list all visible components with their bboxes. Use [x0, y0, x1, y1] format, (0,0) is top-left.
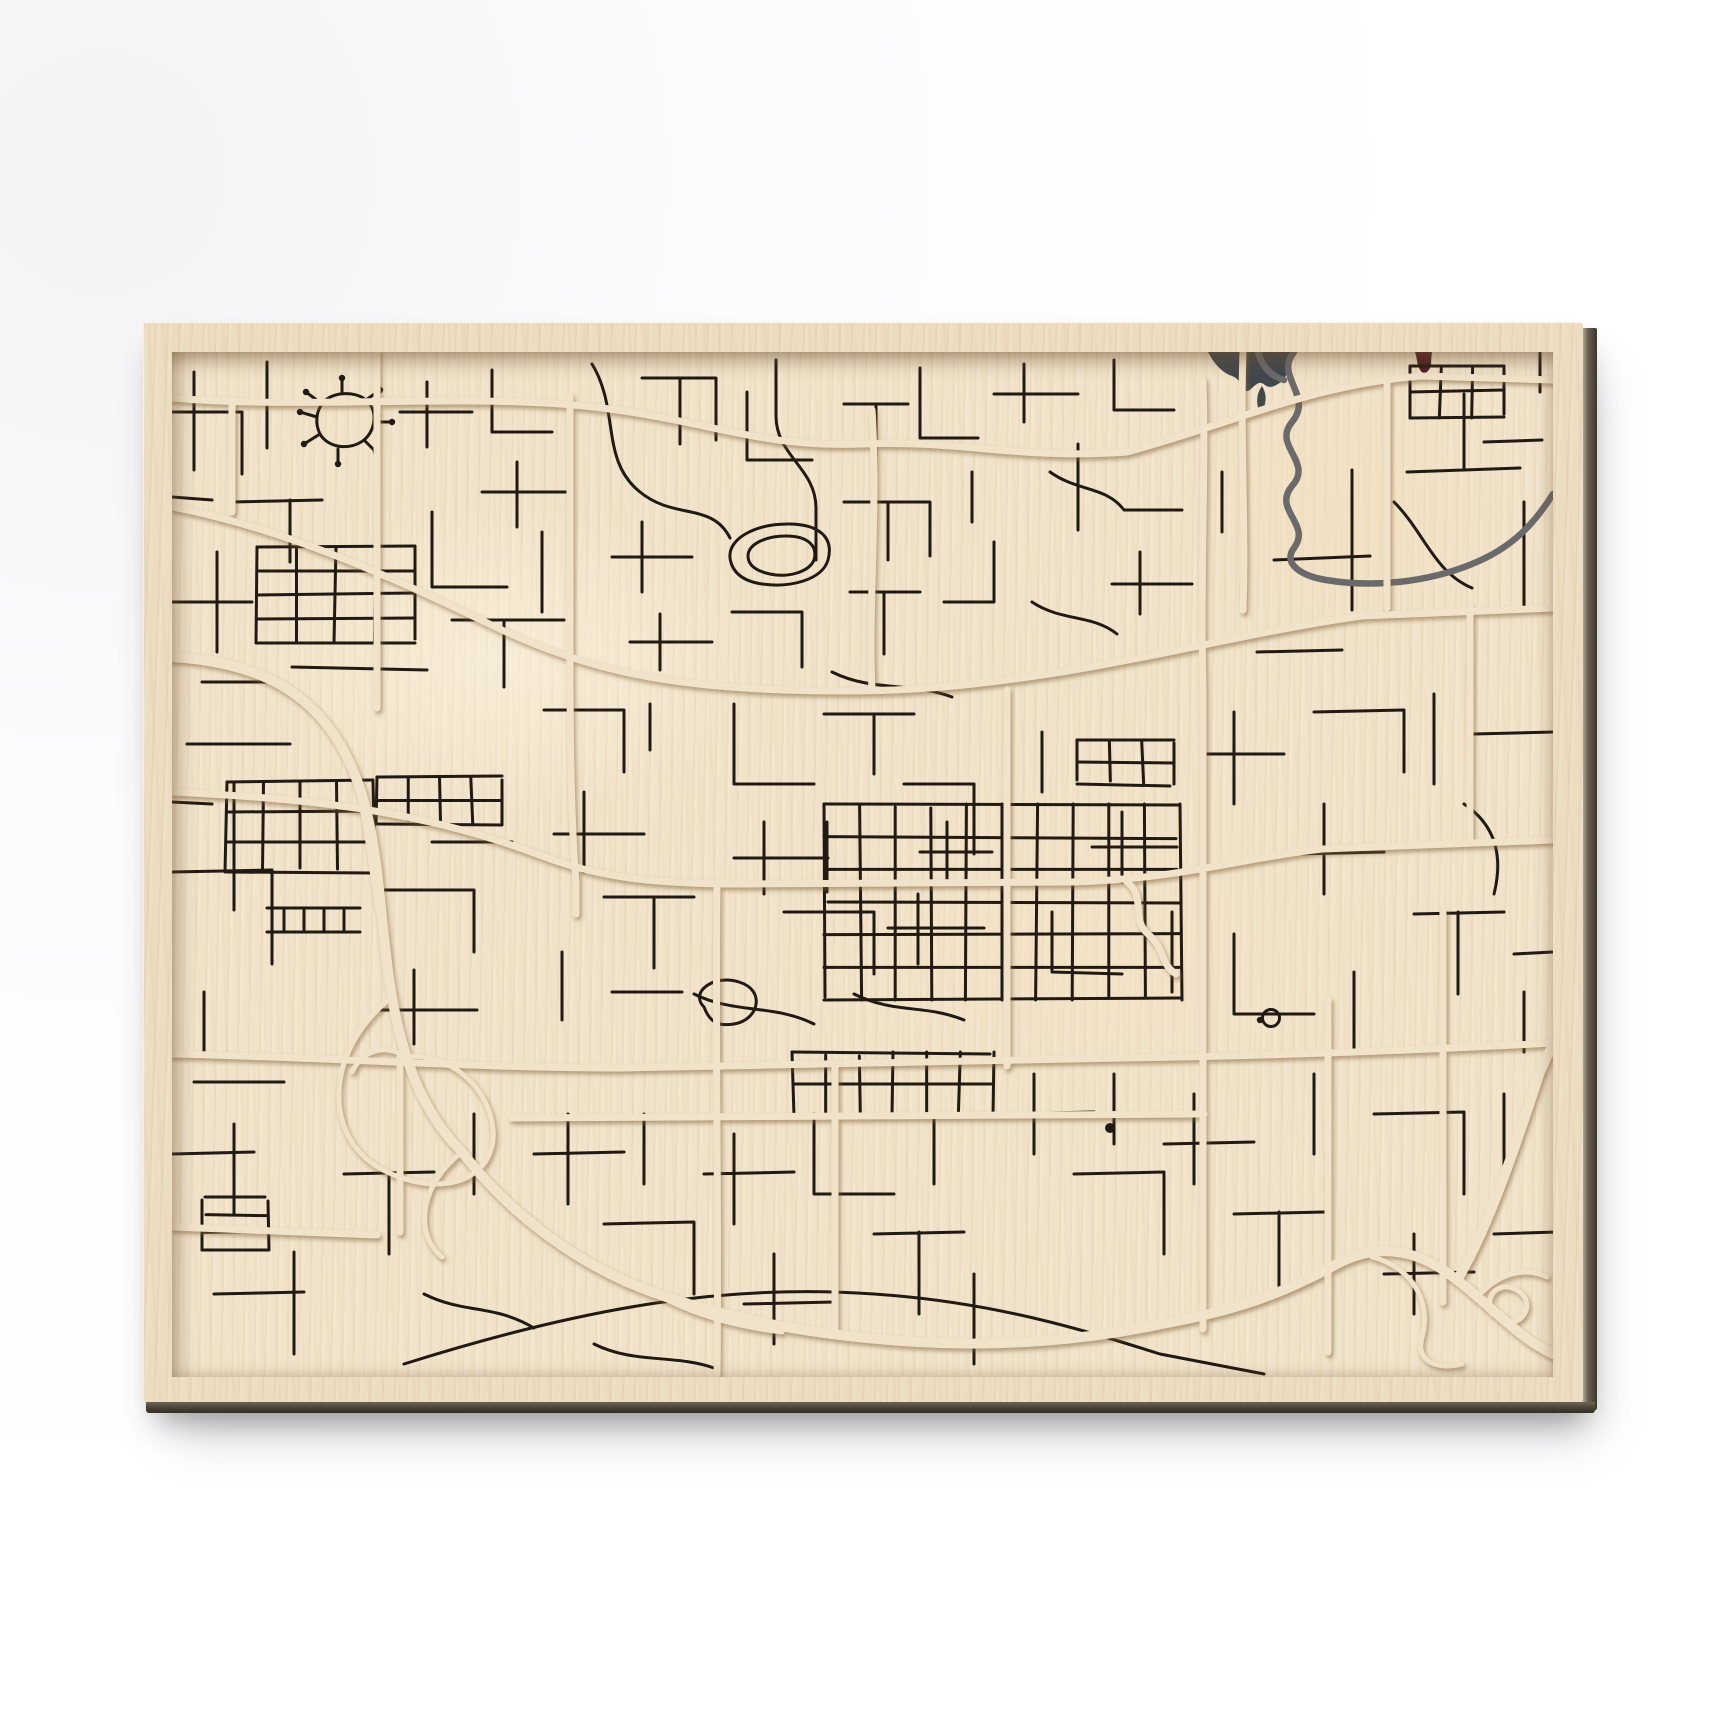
minor-street-path	[172, 870, 272, 964]
grid-street-path	[334, 547, 336, 643]
minor-street-path	[534, 1114, 624, 1204]
grid-street-path	[440, 777, 441, 821]
grid-street-path	[1144, 804, 1145, 997]
grid-street-path	[1410, 390, 1504, 392]
grid-street-path	[256, 547, 257, 643]
minor-street-path	[1514, 952, 1553, 954]
wood-map-panel	[143, 322, 1583, 1402]
grid-street-path	[965, 804, 966, 1000]
ramp-path	[425, 1152, 462, 1257]
street-map-svg	[172, 352, 1553, 1377]
grid-street-path	[1410, 417, 1504, 418]
minor-street-path	[554, 792, 644, 872]
grid-street-path	[1077, 784, 1170, 786]
grid-street-path	[1036, 804, 1038, 1000]
roundabout-icon	[1263, 1010, 1280, 1027]
minor-street-path	[1257, 650, 1342, 652]
cul-de-sac-dot	[297, 409, 303, 415]
minor-street-path	[850, 592, 920, 654]
major-road-path	[1127, 882, 1176, 974]
minor-street-path	[1050, 472, 1182, 510]
major-road-path	[716, 883, 717, 1377]
minor-street-path	[642, 378, 716, 444]
minor-street-path	[1204, 712, 1284, 804]
minor-street-path	[292, 667, 427, 670]
grid-street-path	[1180, 804, 1182, 1000]
minor-street-path	[732, 612, 802, 667]
major-road-path	[1242, 352, 1244, 610]
cul-de-sac-dot	[389, 419, 395, 425]
grid-street-path	[860, 804, 862, 1000]
minor-street-path	[604, 897, 694, 968]
minor-street-path	[1052, 912, 1122, 974]
minor-street-path	[1474, 732, 1553, 734]
grid-street-path	[1072, 804, 1073, 1000]
panel-side-edge-bottom	[146, 1402, 1595, 1413]
pond-dot	[1105, 1123, 1115, 1133]
minor-street-path	[267, 908, 360, 932]
grid-street-path	[337, 782, 338, 869]
minor-street-path	[400, 382, 472, 447]
minor-street-path	[482, 462, 567, 527]
major-road-path	[172, 1043, 1553, 1068]
minor-street-path	[944, 542, 994, 602]
minor-street-path	[734, 704, 814, 784]
minor-street-path	[699, 980, 756, 1025]
minor-street-path	[748, 536, 815, 575]
minor-street-path	[214, 1292, 304, 1294]
minor-street-path	[1414, 912, 1504, 994]
minor-street-path	[994, 364, 1078, 422]
freeway-path	[462, 1152, 1553, 1354]
cul-de-sac-dot	[339, 375, 345, 381]
grid-street-path	[931, 808, 932, 1000]
grid-street-path	[268, 1201, 269, 1250]
minor-street-path	[384, 890, 474, 952]
minor-street-path	[824, 714, 914, 774]
minor-street-path	[1074, 1172, 1164, 1254]
grid-street-path	[824, 837, 1176, 839]
minor-street-path	[594, 1344, 714, 1368]
minor-street-path	[747, 392, 812, 460]
lake-shape	[1208, 352, 1290, 391]
grid-street-path	[227, 872, 373, 873]
minor-street-path	[888, 894, 984, 964]
freeway-path	[1457, 1044, 1553, 1280]
map-surface	[172, 352, 1553, 1377]
grid-street-path	[824, 804, 825, 997]
minor-street-path	[1032, 602, 1117, 634]
cul-de-sac-dot	[303, 389, 309, 395]
minor-street-path	[1164, 1094, 1254, 1184]
minor-street-path	[630, 614, 712, 670]
marker-shape	[1415, 352, 1432, 374]
cul-de-sac-dot	[301, 441, 307, 447]
major-roads-layer	[172, 352, 1553, 1377]
grid-street-path	[1109, 740, 1110, 781]
minor-street-path	[1314, 710, 1404, 772]
minor-street-path	[544, 710, 624, 772]
minor-street-path	[844, 502, 930, 560]
major-road-path	[871, 410, 874, 690]
minor-street-path	[1234, 934, 1314, 1014]
minor-street-path	[1114, 360, 1174, 410]
minor-street-path	[1374, 1112, 1464, 1194]
major-road-path	[570, 396, 576, 914]
cul-de-sac-dot	[335, 461, 341, 467]
grid-street-path	[1077, 762, 1174, 763]
major-road-path	[512, 1114, 1204, 1118]
minor-street-path	[592, 364, 730, 538]
minor-street-path	[1494, 1232, 1553, 1234]
panel-side-edge-right	[1583, 328, 1597, 1410]
minor-street-path	[424, 1294, 534, 1328]
freeway-path	[172, 657, 462, 1152]
product-photo-stage	[0, 0, 1728, 1728]
grid-street-path	[1142, 740, 1144, 784]
grid-street-path	[1472, 366, 1473, 418]
minor-street-path	[814, 1114, 894, 1194]
minor-street-path	[172, 802, 212, 804]
minor-street-path	[920, 368, 978, 438]
minor-street-path	[172, 497, 212, 500]
minor-street-path	[432, 512, 507, 587]
minor-street-path	[1112, 552, 1192, 614]
minor-street-path	[172, 1152, 254, 1154]
major-road-path	[1202, 380, 1204, 1329]
minor-street-path	[904, 784, 974, 854]
grid-street-path	[376, 777, 377, 824]
minor-street-path	[612, 522, 692, 592]
grid-street-path	[471, 777, 473, 824]
grid-street-path	[206, 1215, 268, 1216]
minor-street-path	[1484, 440, 1542, 442]
